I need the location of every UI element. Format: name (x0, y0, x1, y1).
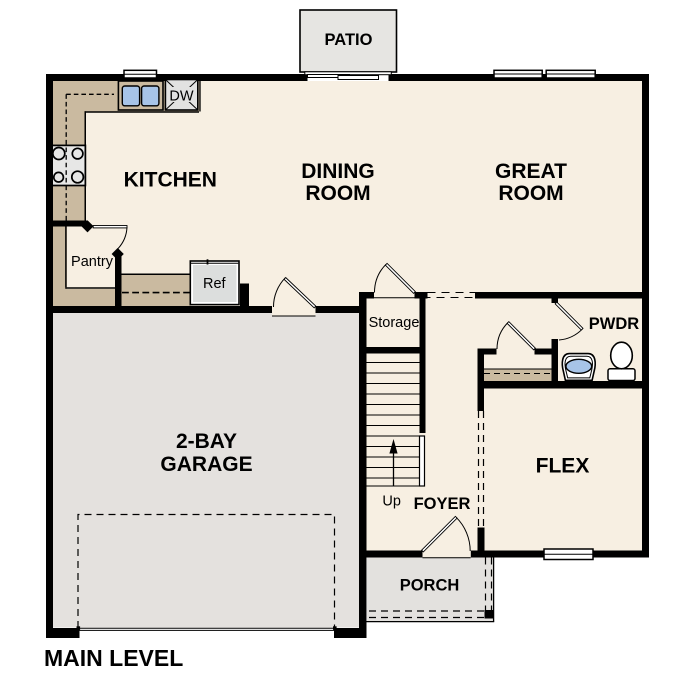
svg-text:GARAGE: GARAGE (160, 453, 252, 476)
svg-text:MAIN LEVEL: MAIN LEVEL (44, 645, 183, 671)
svg-text:PATIO: PATIO (325, 31, 373, 49)
svg-text:ROOM: ROOM (498, 182, 563, 205)
svg-text:DW: DW (169, 89, 193, 105)
svg-text:Pantry: Pantry (71, 254, 114, 270)
svg-text:PWDR: PWDR (589, 315, 639, 333)
svg-text:2-BAY: 2-BAY (176, 430, 237, 453)
svg-text:KITCHEN: KITCHEN (124, 169, 217, 192)
svg-text:Ref: Ref (203, 276, 227, 292)
svg-text:PORCH: PORCH (400, 577, 460, 595)
svg-text:ROOM: ROOM (305, 182, 370, 205)
svg-text:Up: Up (382, 494, 401, 510)
svg-text:FLEX: FLEX (536, 455, 590, 478)
svg-text:DINING: DINING (301, 160, 375, 183)
svg-text:FOYER: FOYER (414, 495, 471, 513)
svg-text:Storage: Storage (369, 315, 420, 331)
svg-text:GREAT: GREAT (495, 160, 567, 183)
